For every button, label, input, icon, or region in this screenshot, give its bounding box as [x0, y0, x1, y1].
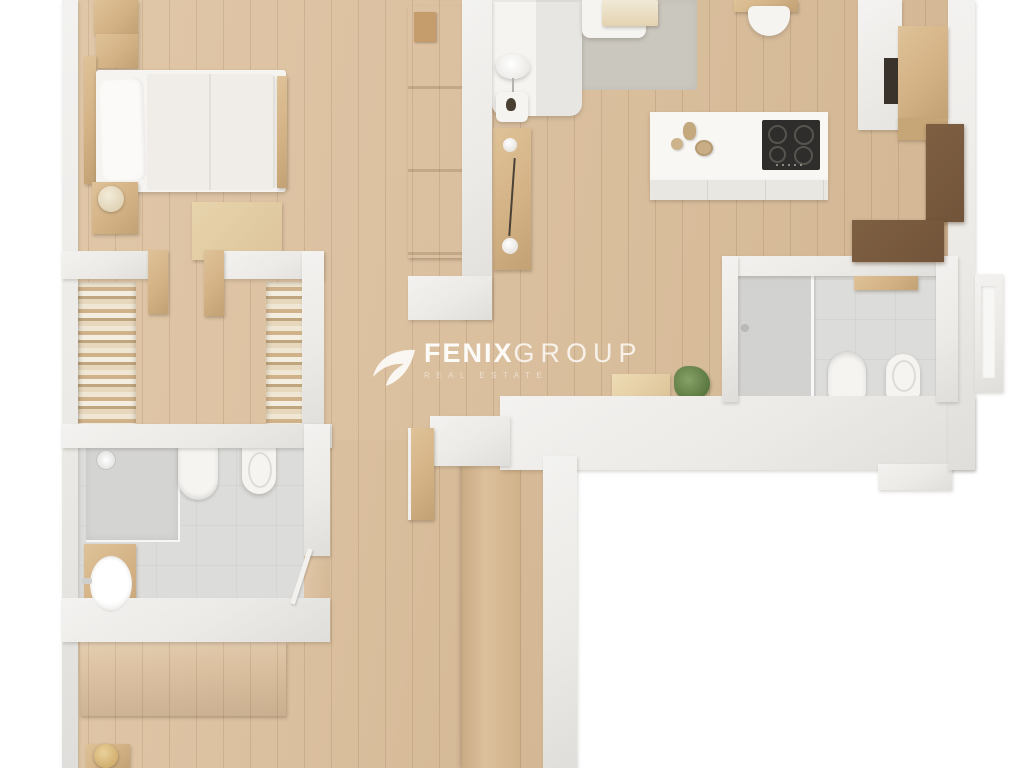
wall-left-outer	[62, 0, 78, 768]
nightstand-top-2	[96, 34, 138, 68]
bed-frame-edge	[277, 76, 287, 188]
bathroom-1-bidet-basin	[248, 452, 272, 488]
side-table-vase	[506, 98, 516, 111]
shelf-decor-box	[414, 12, 436, 42]
bathroom-2-shower-floor	[737, 276, 811, 398]
brand-name: FENIXGROUP	[424, 340, 643, 367]
wall-bedroom-living-divider	[462, 0, 492, 318]
wall-closet-right	[302, 251, 324, 433]
brand-tagline: REAL ESTATE	[424, 372, 643, 380]
bottom-wardrobe-column	[462, 440, 520, 768]
kitchen-island-front	[650, 180, 828, 200]
island-vase-1	[683, 122, 696, 140]
floor-plan-render: FENIXGROUP REAL ESTATE	[0, 0, 1024, 768]
wall-bottom-right-step	[878, 464, 952, 490]
coffee-table	[602, 0, 658, 26]
floor-lamp-shade	[496, 54, 530, 79]
cooktop	[762, 120, 820, 170]
bathroom-2-shower-head	[741, 324, 749, 332]
cooktop-burner-1	[768, 125, 787, 144]
cooktop-burner-3	[769, 146, 786, 163]
built-in-oven	[884, 58, 898, 104]
island-vase-2	[671, 138, 683, 150]
console-vase-top	[503, 138, 517, 152]
brand-name-light: GROUP	[514, 338, 643, 368]
closet-rack-left	[78, 282, 136, 430]
bed-duvet	[147, 74, 277, 190]
kitchen-cabinet-wood	[898, 26, 948, 118]
bathroom-1-shower-head	[96, 450, 116, 470]
bathroom-2-shower-glass	[811, 276, 814, 398]
closet-door-left	[148, 250, 168, 314]
wall-bathroom-1-right	[304, 424, 330, 556]
wall-mid-connector	[430, 416, 510, 466]
bottom-lamp	[94, 744, 118, 768]
walnut-tall-panel	[926, 124, 964, 222]
bathroom-1-sink	[90, 556, 132, 612]
watermark: FENIXGROUP REAL ESTATE	[372, 340, 682, 404]
closet-door-right	[204, 250, 224, 316]
cooktop-burner-2	[794, 125, 814, 145]
nightstand-top	[94, 0, 138, 34]
bathroom-1-faucet	[82, 578, 92, 584]
walnut-sideboard	[852, 220, 944, 262]
bathroom-2-bidet-basin	[892, 360, 916, 392]
fenix-swoosh-logo	[372, 348, 416, 390]
bed-headboard	[84, 56, 96, 184]
walnut-sideboard-shelf	[854, 276, 918, 290]
brand-name-bold: FENIX	[424, 338, 514, 368]
bathroom-1-toilet	[178, 444, 218, 500]
wall-closet-header-left	[62, 251, 150, 279]
bed-pillow	[99, 77, 147, 182]
table-lamp	[98, 186, 124, 212]
wall-divider-foot	[408, 276, 492, 320]
shelf-unit	[408, 6, 462, 258]
wall-bottom-wing-right	[543, 456, 577, 768]
cooktop-controls	[776, 164, 806, 166]
bottom-dresser	[80, 642, 286, 716]
cooktop-burner-4	[794, 146, 813, 165]
wall-right-bay-window	[981, 286, 995, 378]
island-bowl	[695, 140, 713, 156]
bathroom-2-toilet	[828, 352, 866, 398]
watermark-text: FENIXGROUP REAL ESTATE	[424, 340, 643, 380]
console-vase-bottom	[502, 238, 518, 254]
wall-bathroom-2-right	[936, 256, 958, 402]
wall-bathroom-1-top	[62, 424, 332, 448]
corridor-door-leaf	[408, 428, 434, 520]
wall-bathroom-2-left	[722, 256, 738, 402]
